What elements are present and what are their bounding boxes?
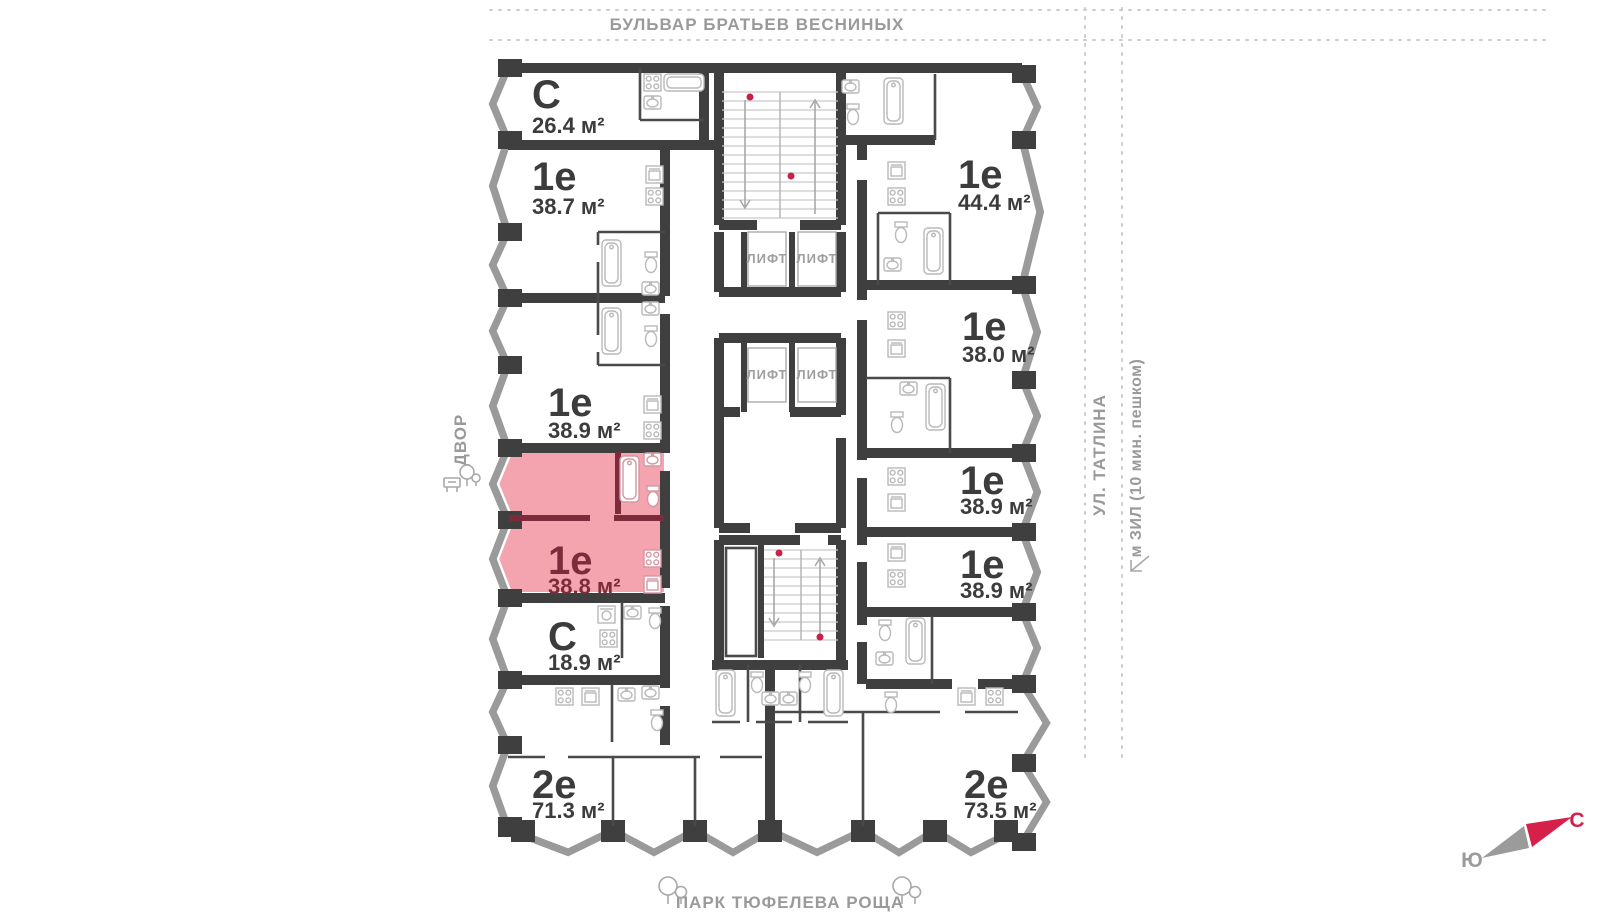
right-street-dotted-line — [1085, 8, 1122, 764]
stair-marker-dot — [817, 634, 824, 641]
elevator-label: ЛИФТ — [746, 251, 787, 266]
apartment-left-6-hotspot[interactable] — [508, 684, 764, 826]
stair-shaft — [726, 548, 756, 656]
apartment-right-1-hotspot[interactable] — [838, 74, 1020, 283]
yard-icon — [444, 465, 480, 492]
compass-south-needle — [1482, 826, 1529, 858]
elevator-label: ЛИФТ — [746, 367, 787, 382]
apartment-left-4-hotspot[interactable] — [508, 450, 664, 596]
street-label-top: БУЛЬВАР БРАТЬЕВ ВЕСНИНЫХ — [610, 15, 905, 34]
apartment-left-1-hotspot[interactable] — [508, 74, 704, 138]
staircase-bottom — [764, 550, 838, 641]
apartment-right-3-hotspot[interactable] — [866, 457, 1020, 529]
compass: Ю С — [1461, 809, 1584, 872]
staircase-top — [722, 92, 838, 218]
metro-label: м ЗИЛ (10 мин. пешком) — [1128, 359, 1145, 558]
apartment-left-3-hotspot[interactable] — [508, 300, 663, 446]
apartment-left-5-hotspot[interactable] — [508, 600, 664, 678]
apartment-right-5-hotspot[interactable] — [866, 616, 1020, 826]
floor-plan-page: БУЛЬВАР БРАТЬЕВ ВЕСНИНЫХ ПАРК ТЮФЕЛЕВА Р… — [0, 0, 1600, 920]
stair-marker-dot — [747, 94, 754, 101]
street-label-park: ПАРК ТЮФЕЛЕВА РОЩА — [676, 893, 904, 912]
street-label-yard: ДВОР — [451, 414, 470, 467]
apartment-right-4-hotspot[interactable] — [866, 536, 1020, 608]
stair-marker-dot — [788, 173, 795, 180]
compass-north-label: С — [1569, 809, 1584, 832]
elevator-label: ЛИФТ — [796, 251, 837, 266]
apartment-left-2-hotspot[interactable] — [508, 150, 663, 296]
elevator-label: ЛИФТ — [796, 367, 837, 382]
floor-plan-svg: БУЛЬВАР БРАТЬЕВ ВЕСНИНЫХ ПАРК ТЮФЕЛЕВА Р… — [0, 0, 1600, 920]
apartment-right-2-hotspot[interactable] — [866, 289, 1020, 449]
stair-marker-dot — [776, 550, 783, 557]
compass-south-label: Ю — [1461, 849, 1483, 872]
street-label-right: УЛ. ТАТЛИНА — [1090, 394, 1109, 516]
compass-north-needle — [1526, 817, 1572, 847]
